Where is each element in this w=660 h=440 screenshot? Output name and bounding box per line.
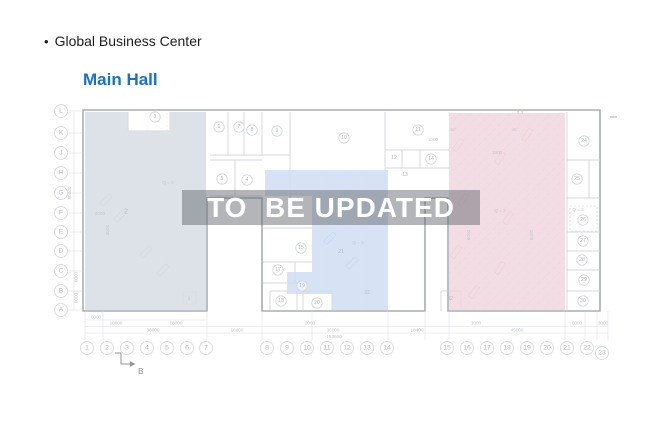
plan-annotation: Q = 3: [572, 207, 584, 212]
grid-row-labels: LKJHGFEDCBA: [55, 105, 84, 317]
dimension-label: 60000: [67, 186, 72, 199]
grid-row-label-A: A: [59, 307, 64, 314]
grid-col-label-12: 12: [343, 345, 351, 352]
dimension-label: 6000: [572, 321, 583, 326]
grid-row-label-G: G: [58, 190, 63, 197]
plan-annotation: Q = 3: [162, 180, 174, 185]
section-marker: B: [115, 353, 144, 376]
grid-col-label-3: 3: [125, 345, 129, 352]
grid-col-label-8: 8: [265, 345, 269, 352]
grid-col-label-23: 23: [598, 350, 606, 357]
dimension-label: 36000: [327, 327, 340, 332]
plan-annotation: 1000: [428, 137, 439, 142]
grid-row-label-L: L: [59, 108, 63, 115]
room-number-4: 4: [246, 177, 249, 183]
grid-col-label-7: 7: [204, 345, 208, 352]
plan-annotation: 1900: [492, 150, 503, 155]
room-number-21: 21: [338, 249, 344, 255]
grid-col-label-15: 15: [443, 345, 451, 352]
room-number-10: 10: [341, 135, 347, 141]
room-number-6: 6: [218, 124, 221, 130]
room-number-26: 26: [580, 217, 586, 223]
grid-col-label-5: 5: [165, 345, 169, 352]
room-number-28: 28: [579, 257, 585, 263]
watermark-text: TO BE UPDATED: [207, 192, 455, 224]
grid-col-label-22: 22: [583, 345, 591, 352]
dimension-label: 45000: [511, 327, 524, 332]
dimension-label: 18400: [411, 327, 424, 332]
room-number-8: 8: [251, 127, 254, 133]
room-number-13: 13: [402, 172, 408, 178]
room-number-25: 25: [574, 176, 580, 182]
grid-row-label-J: J: [59, 150, 62, 157]
room-number-19: 19: [299, 283, 305, 289]
plan-annotation: Q = 3: [352, 240, 364, 245]
dimension-label: 2000: [305, 321, 316, 326]
grid-row-label-E: E: [59, 229, 64, 236]
grid-row-label-B: B: [59, 288, 64, 295]
plan-annotation: 3000: [105, 224, 110, 235]
room-number-15: 15: [298, 245, 304, 251]
dimension-label: 6000: [91, 315, 102, 320]
dimension-label: 1000: [471, 321, 482, 326]
grid-col-label-10: 10: [303, 345, 311, 352]
room-number-7: 7: [238, 124, 241, 130]
grid-row-label-H: H: [59, 170, 64, 177]
room-number-12: 12: [391, 155, 397, 161]
grid-col-label-4: 4: [145, 345, 149, 352]
plan-annotation: 2.3: [517, 110, 524, 115]
grid-col-label-21: 21: [563, 345, 571, 352]
grid-col-label-2: 2: [105, 345, 109, 352]
grid-col-label-16: 16: [463, 345, 471, 352]
dimension-label: 18000: [170, 321, 183, 326]
grid-col-label-18: 18: [503, 345, 511, 352]
room-number-17: 17: [275, 267, 281, 273]
grid-row-label-D: D: [59, 248, 64, 255]
plan-annotation: 6000: [529, 229, 534, 240]
dimension-label: 3000: [598, 321, 609, 326]
grid-col-label-14: 14: [383, 345, 391, 352]
plan-annotation: 2000: [95, 211, 106, 216]
room-number-3: 3: [154, 114, 157, 120]
grid-col-label-13: 13: [363, 345, 371, 352]
grid-row-label-C: C: [59, 268, 64, 275]
room-number-11: 11: [415, 127, 420, 133]
dimension-label: 6000: [74, 271, 79, 282]
grid-col-labels: 1234567891011121314151617181920212223: [81, 342, 609, 360]
grid-col-label-20: 20: [543, 345, 551, 352]
room-number-14: 14: [428, 156, 434, 162]
room-number-27: 27: [580, 238, 586, 244]
room-number-20: 20: [314, 300, 320, 306]
grid-row-label-K: K: [59, 130, 64, 137]
dimension-label: 18000: [231, 327, 244, 332]
room-number-24: 24: [581, 138, 587, 144]
dimension-label: 153660: [326, 334, 342, 339]
section-marker-label: B: [138, 366, 144, 376]
grid-col-label-6: 6: [185, 345, 189, 352]
room-number-9: 9: [276, 128, 279, 134]
room-number-2: 2: [124, 209, 128, 216]
grid-col-label-17: 17: [483, 345, 491, 352]
grid-col-label-11: 11: [323, 345, 330, 352]
grid-row-label-F: F: [59, 210, 63, 217]
grid-col-label-1: 1: [85, 345, 89, 352]
room-number-32: 32: [447, 296, 453, 302]
watermark-band: TO BE UPDATED: [182, 190, 480, 225]
plan-annotation: 6000: [466, 229, 471, 240]
dimension-label: 6000: [74, 292, 79, 303]
room-number-18: 18: [278, 298, 284, 304]
dimension-label: 18000: [110, 321, 123, 326]
section-marker-arrow: [130, 361, 136, 367]
grid-col-label-19: 19: [523, 345, 531, 352]
room-number-30: 30: [580, 298, 586, 304]
room-number-5: 5: [221, 176, 224, 182]
plan-annotation: 45°: [450, 127, 457, 132]
grid-col-label-9: 9: [285, 345, 289, 352]
plan-annotation: Q = 3: [494, 208, 506, 213]
room-number-29: 29: [581, 277, 587, 283]
room-number-22: 22: [364, 290, 370, 296]
dimension-label: 36000: [147, 327, 160, 332]
plan-annotation: 45°: [512, 127, 519, 132]
